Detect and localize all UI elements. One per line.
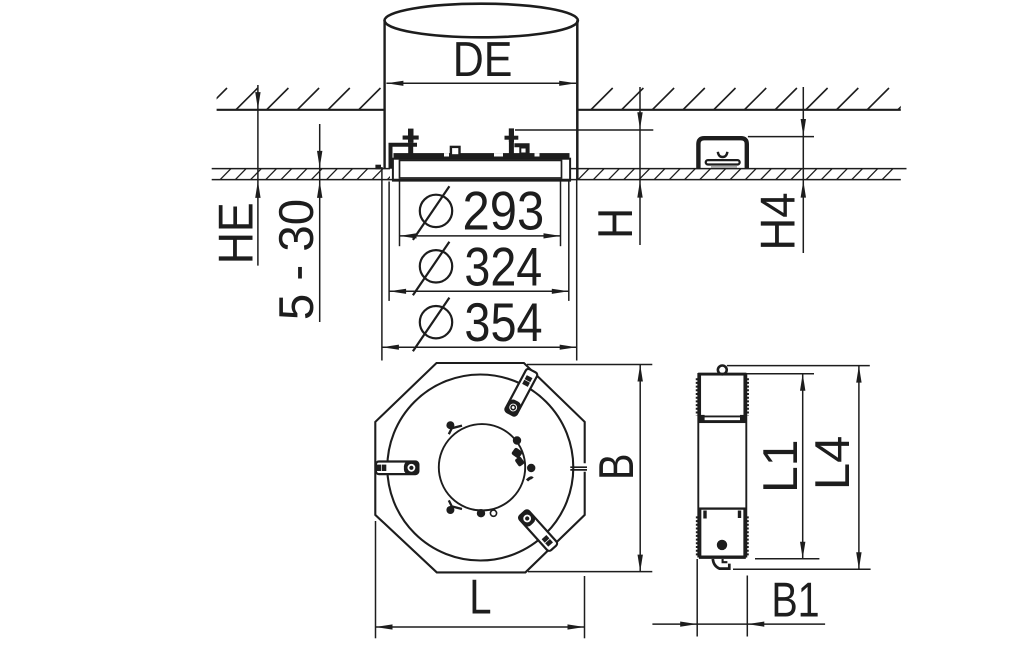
- svg-text:HE: HE: [210, 202, 264, 264]
- svg-text:L: L: [469, 571, 491, 625]
- svg-text:L1: L1: [754, 439, 808, 493]
- svg-text:B: B: [590, 454, 644, 480]
- svg-text:DE: DE: [453, 32, 513, 87]
- svg-text:293: 293: [463, 180, 545, 241]
- svg-text:B1: B1: [771, 574, 819, 628]
- svg-text:H4: H4: [752, 192, 806, 250]
- svg-text:H: H: [589, 208, 643, 239]
- svg-text:324: 324: [464, 236, 542, 297]
- svg-text:354: 354: [464, 292, 542, 353]
- svg-text:5 - 30: 5 - 30: [270, 199, 324, 320]
- svg-text:L4: L4: [806, 436, 860, 491]
